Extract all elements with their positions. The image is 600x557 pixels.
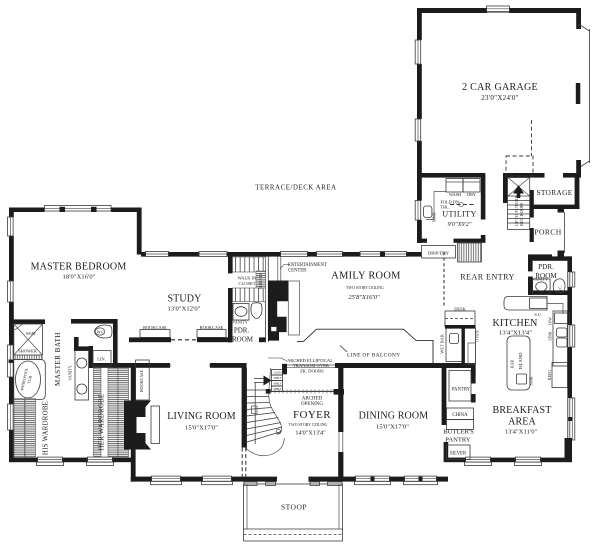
svg-text:AREA: AREA <box>508 417 536 428</box>
svg-text:BREAKFAST: BREAKFAST <box>493 405 552 416</box>
svg-text:PANTRY: PANTRY <box>445 437 471 444</box>
svg-text:PORCH: PORCH <box>534 228 561 237</box>
svg-text:OVEN: OVEN <box>475 330 480 341</box>
svg-text:ARCHED ELLIPTICAL: ARCHED ELLIPTICAL <box>287 358 333 363</box>
svg-text:BOOKCASE: BOOKCASE <box>139 369 144 392</box>
svg-text:2 CAR GARAGE: 2 CAR GARAGE <box>462 82 538 93</box>
svg-text:SINK: SINK <box>529 376 534 385</box>
svg-text:ENTERTAINMENT: ENTERTAINMENT <box>288 263 327 268</box>
svg-text:VANITY: VANITY <box>232 320 248 325</box>
svg-text:CHINA: CHINA <box>452 413 468 418</box>
svg-text:SINK: SINK <box>548 331 553 340</box>
svg-text:PDR.: PDR. <box>234 327 250 335</box>
svg-text:WASH: WASH <box>449 192 461 197</box>
svg-text:WET BAR: WET BAR <box>440 334 445 354</box>
svg-text:SHELF: SHELF <box>274 382 282 385</box>
svg-text:TWO STORY CEILING: TWO STORY CEILING <box>289 423 328 427</box>
svg-text:DRIP/DRY: DRIP/DRY <box>428 251 450 256</box>
svg-text:VANITY: VANITY <box>532 277 548 282</box>
svg-text:REFG: REFG <box>547 370 552 380</box>
svg-text:13'0"X12'0": 13'0"X12'0" <box>168 306 201 313</box>
svg-text:CLOSET: CLOSET <box>238 281 255 286</box>
svg-text:ROOM: ROOM <box>232 336 254 344</box>
svg-text:STORAGE: STORAGE <box>536 188 572 197</box>
svg-text:18'0"X16'0": 18'0"X16'0" <box>63 274 96 281</box>
svg-text:COATS: COATS <box>274 371 283 374</box>
svg-text:D/W: D/W <box>548 317 553 325</box>
svg-text:23'0"X24'0": 23'0"X24'0" <box>481 94 519 102</box>
svg-text:S.U.: S.U. <box>535 312 542 317</box>
svg-text:UTILITY: UTILITY <box>442 210 476 219</box>
svg-text:14'0"X13'4": 14'0"X13'4" <box>295 430 326 437</box>
svg-text:SEAT: SEAT <box>26 331 36 336</box>
svg-text:13'4"X13'4": 13'4"X13'4" <box>499 330 532 337</box>
svg-text:HIS WARDROBE: HIS WARDROBE <box>43 401 50 455</box>
svg-text:MASTER BEDROOM: MASTER BEDROOM <box>31 262 127 273</box>
svg-text:SILVER: SILVER <box>450 452 467 457</box>
svg-text:13'4"X11'0": 13'4"X11'0" <box>505 429 538 436</box>
svg-text:PANTRY: PANTRY <box>452 388 471 393</box>
svg-text:MASTER BATH: MASTER BATH <box>54 332 62 386</box>
svg-text:15'0"X17'0": 15'0"X17'0" <box>376 424 409 431</box>
svg-text:STOOP: STOOP <box>281 503 307 512</box>
svg-text:OPENING: OPENING <box>301 402 323 407</box>
svg-text:PDR.: PDR. <box>538 263 554 271</box>
svg-text:FOYER: FOYER <box>293 409 331 421</box>
svg-text:LINE OF BALCONY: LINE OF BALCONY <box>347 353 400 359</box>
svg-text:BOOKCASE: BOOKCASE <box>200 325 224 330</box>
svg-text:REC ROOM: REC ROOM <box>519 203 524 226</box>
svg-text:TWO STORY CEILING: TWO STORY CEILING <box>346 286 384 290</box>
svg-text:WALK IN: WALK IN <box>238 276 258 281</box>
svg-text:DRY: DRY <box>467 192 476 197</box>
svg-text:LIVING ROOM: LIVING ROOM <box>167 411 236 422</box>
svg-text:BUTLER'S: BUTLER'S <box>443 429 474 436</box>
svg-text:KITCHEN: KITCHEN <box>493 318 538 329</box>
svg-text:HER WARDROBE: HER WARDROBE <box>99 394 106 451</box>
svg-text:W.C.: W.C. <box>559 285 563 292</box>
svg-text:BAR: BAR <box>510 360 515 369</box>
svg-text:15'0"X17'0": 15'0"X17'0" <box>185 425 218 432</box>
svg-text:TRANSOM OVER: TRANSOM OVER <box>293 363 330 368</box>
svg-text:ARCHED: ARCHED <box>302 397 323 402</box>
svg-text:SHOWER: SHOWER <box>18 349 37 354</box>
svg-text:DESK: DESK <box>454 307 466 312</box>
svg-text:SHELF: SHELF <box>274 377 282 380</box>
svg-text:REAR ENTRY: REAR ENTRY <box>460 273 515 282</box>
svg-text:FR. DOORS: FR. DOORS <box>300 369 324 374</box>
svg-text:SINK: SINK <box>432 211 437 222</box>
svg-text:STUDY: STUDY <box>167 294 201 305</box>
svg-text:BOOKCASE: BOOKCASE <box>143 325 167 330</box>
svg-text:SHELVES: SHELVES <box>259 273 263 289</box>
svg-text:9'0"X9'2": 9'0"X9'2" <box>448 221 472 228</box>
svg-text:TERRACE/DECK AREA: TERRACE/DECK AREA <box>255 185 336 192</box>
svg-text:25'8"X16'0": 25'8"X16'0" <box>348 294 379 301</box>
svg-text:W.C.: W.C. <box>97 330 105 335</box>
svg-text:ISLAND: ISLAND <box>518 352 523 370</box>
svg-text:LIN.: LIN. <box>97 357 106 362</box>
svg-text:AMILY ROOM: AMILY ROOM <box>331 271 400 282</box>
svg-text:CENTER: CENTER <box>288 269 307 274</box>
svg-text:DINING ROOM: DINING ROOM <box>359 411 429 422</box>
svg-text:VANITY: VANITY <box>68 365 73 381</box>
svg-text:SHELF: SHELF <box>274 388 282 391</box>
